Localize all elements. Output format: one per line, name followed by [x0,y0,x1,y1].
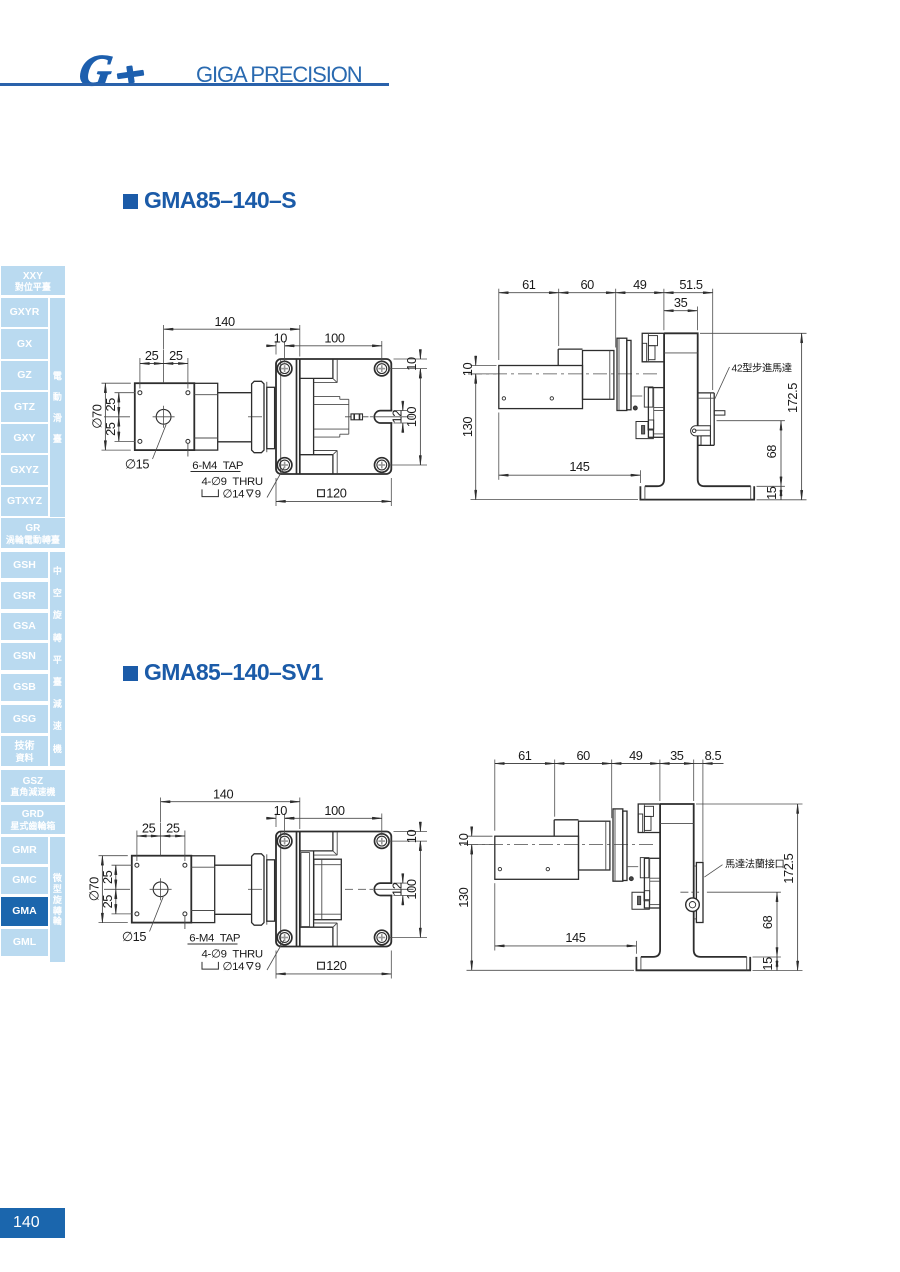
svg-text:51.5: 51.5 [679,277,703,292]
svg-text:10: 10 [404,357,419,371]
svg-text:∅14: ∅14 [223,488,245,500]
svg-text:9: 9 [255,961,261,973]
svg-text:61: 61 [518,748,532,763]
svg-text:60: 60 [580,277,594,292]
svg-text:35: 35 [670,748,684,763]
svg-text:25: 25 [103,398,118,412]
svg-text:馬達法蘭接口: 馬達法蘭接口 [725,858,784,871]
svg-text:145: 145 [565,930,585,945]
svg-text:15: 15 [760,957,775,971]
svg-text:61: 61 [522,277,536,292]
svg-text:25: 25 [166,820,180,835]
svg-text:172.5: 172.5 [781,853,796,883]
svg-text:25: 25 [100,870,115,884]
svg-text:∅14: ∅14 [223,961,245,973]
svg-text:100: 100 [324,803,344,818]
svg-text:49: 49 [633,277,647,292]
svg-text:60: 60 [576,748,590,763]
svg-text:12: 12 [390,882,405,896]
svg-text:10: 10 [274,331,288,346]
svg-text:25: 25 [145,348,159,363]
svg-text:68: 68 [760,915,775,929]
svg-text:120: 120 [326,958,346,973]
svg-text:10: 10 [404,830,419,844]
svg-text:15: 15 [764,486,779,500]
svg-text:∅15: ∅15 [122,929,146,944]
svg-text:100: 100 [404,407,419,427]
svg-text:4-∅9 THRU: 4-∅9 THRU [202,948,263,960]
svg-text:120: 120 [326,485,346,500]
svg-text:68: 68 [764,445,779,459]
svg-text:25: 25 [169,348,183,363]
svg-text:12: 12 [390,410,405,424]
svg-text:140: 140 [213,787,233,802]
svg-text:∅15: ∅15 [125,457,149,472]
svg-text:25: 25 [103,422,118,436]
svg-text:10: 10 [456,833,471,847]
svg-text:42型步進馬達: 42型步進馬達 [732,361,792,374]
svg-text:4-∅9 THRU: 4-∅9 THRU [202,476,263,488]
svg-text:25: 25 [142,820,156,835]
svg-text:130: 130 [456,887,471,907]
svg-text:8.5: 8.5 [705,748,722,763]
svg-text:10: 10 [274,803,288,818]
svg-text:6-M4 TAP: 6-M4 TAP [192,460,243,472]
svg-text:49: 49 [629,748,643,763]
svg-text:172.5: 172.5 [785,383,800,413]
svg-text:9: 9 [255,488,261,500]
svg-text:140: 140 [215,314,235,329]
svg-text:100: 100 [404,879,419,899]
svg-text:25: 25 [100,895,115,909]
svg-text:100: 100 [324,331,344,346]
svg-text:35: 35 [674,295,688,310]
svg-text:130: 130 [460,417,475,437]
svg-text:6-M4 TAP: 6-M4 TAP [189,933,240,945]
svg-text:145: 145 [569,459,589,474]
svg-text:10: 10 [460,363,475,377]
